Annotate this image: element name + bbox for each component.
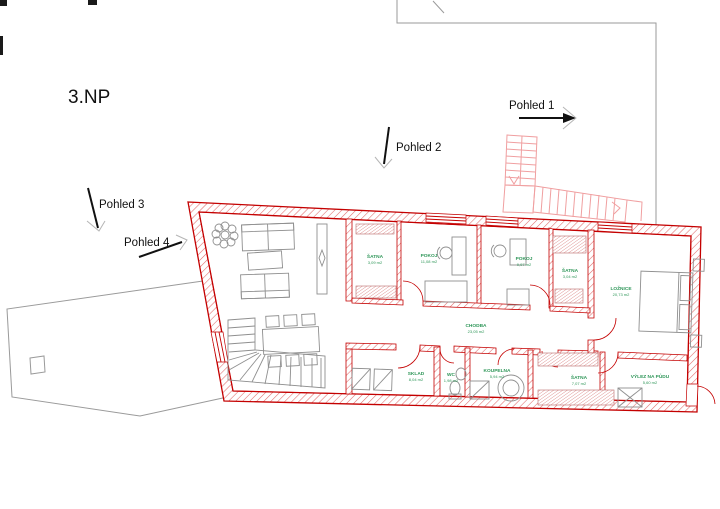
plant-icon <box>212 222 238 248</box>
staircase-outline <box>503 135 642 222</box>
svg-text:ŠATNA: ŠATNA <box>367 252 384 260</box>
view-annotation-pohled-3: Pohled 3 <box>87 188 144 231</box>
room-label-sklad: SKLAD 8,04 m2 <box>408 371 425 382</box>
arrow-right-icon <box>563 113 576 123</box>
roof-outline <box>7 281 232 416</box>
floorplan-canvas: 3.NP Pohled 1 <box>0 0 720 509</box>
view-label: Pohled 4 <box>124 237 170 249</box>
view-annotation-pohled-2: Pohled 2 <box>375 127 441 168</box>
room-label-vylez-na-pudu: VÝLEZ NA PŮDU 5,60 m2 <box>631 372 670 385</box>
view-label: Pohled 3 <box>99 199 144 211</box>
window <box>211 332 228 362</box>
room-label-satna-3: ŠATNA 7,07 m2 <box>571 373 588 386</box>
svg-text:3,04 m2: 3,04 m2 <box>563 274 578 279</box>
bedroom2-furniture <box>491 239 529 305</box>
floorplan-page: 3.NP Pohled 1 <box>0 0 720 509</box>
room-label-satna-1: ŠATNA 3,09 m2 <box>367 252 384 265</box>
room-label-satna-2: ŠATNA 3,04 m2 <box>562 266 579 279</box>
scan-artifacts <box>0 0 97 55</box>
svg-text:ŠATNA: ŠATNA <box>571 373 588 381</box>
adjacent-building-outline <box>397 0 656 227</box>
room-label-wc: WC 1,98 m2 <box>444 372 459 383</box>
window <box>426 213 466 224</box>
svg-text:ŠATNA: ŠATNA <box>562 266 579 274</box>
floor-plan: ŠATNA 3,09 m2 POKOJ 11,08 m2 POKOJ 9,97 … <box>188 202 715 412</box>
view-annotation-pohled-1: Pohled 1 <box>509 100 576 129</box>
room-label-loznice: LOŽNICE 20,73 m2 <box>610 284 632 297</box>
svg-text:1,98 m2: 1,98 m2 <box>444 378 459 383</box>
chimney-outline <box>30 356 45 374</box>
bed-double <box>639 271 693 333</box>
bedroom1-furniture <box>425 237 467 302</box>
window <box>486 216 518 227</box>
svg-text:5,94 m2: 5,94 m2 <box>490 374 505 379</box>
living-room-furniture <box>212 222 327 388</box>
toilet <box>450 381 460 395</box>
svg-text:3,09 m2: 3,09 m2 <box>368 260 383 265</box>
svg-text:11,08 m2: 11,08 m2 <box>421 259 438 264</box>
room-label-chodba: CHODBA 23,05 m2 <box>465 323 487 334</box>
view-label: Pohled 2 <box>396 142 441 154</box>
interior-walls <box>346 219 687 400</box>
storage-skylights <box>352 368 393 390</box>
page-title: 3.NP <box>68 87 110 108</box>
stair-direction-arrow-2 <box>612 202 620 214</box>
desk <box>452 237 466 275</box>
window <box>598 222 632 233</box>
arrow-down-icon <box>384 127 389 164</box>
view-annotation-pohled-4: Pohled 4 <box>124 235 187 257</box>
svg-text:20,73 m2: 20,73 m2 <box>613 292 630 297</box>
view-label: Pohled 1 <box>509 100 554 112</box>
room-label-pokoj-1: POKOJ 11,08 m2 <box>421 253 438 264</box>
svg-text:5,60 m2: 5,60 m2 <box>643 380 658 385</box>
svg-text:8,04 m2: 8,04 m2 <box>409 377 424 382</box>
sofa <box>241 273 290 299</box>
room-label-pokoj-2: POKOJ 9,97 m2 <box>516 256 533 267</box>
svg-text:7,07 m2: 7,07 m2 <box>572 381 587 386</box>
svg-text:LOŽNICE: LOŽNICE <box>610 284 632 292</box>
bed-single <box>425 281 467 302</box>
svg-text:9,97 m2: 9,97 m2 <box>517 262 532 267</box>
desk-chair <box>494 245 506 257</box>
svg-text:23,05 m2: 23,05 m2 <box>468 329 485 334</box>
room-label-koupelna: KOUPELNA 5,94 m2 <box>484 368 511 379</box>
coffee-table <box>247 251 282 270</box>
arrow-down-icon <box>88 188 98 228</box>
stair-landing <box>503 185 535 213</box>
bed-single <box>507 289 529 305</box>
exterior-door <box>686 384 715 406</box>
sliding-door <box>317 224 327 294</box>
desk-chair <box>440 247 452 259</box>
svg-text:VÝLEZ NA PŮDU: VÝLEZ NA PŮDU <box>631 372 670 380</box>
sofa <box>242 223 295 251</box>
